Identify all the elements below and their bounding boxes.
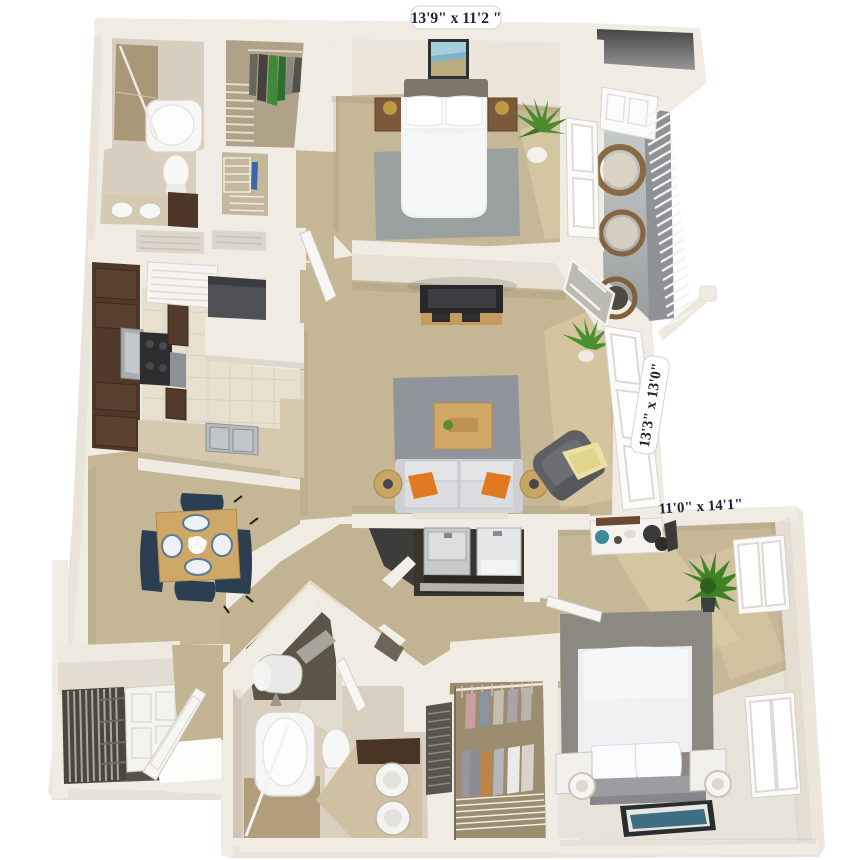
svg-text:13'9" x 11'2 ": 13'9" x 11'2 "	[411, 10, 502, 27]
